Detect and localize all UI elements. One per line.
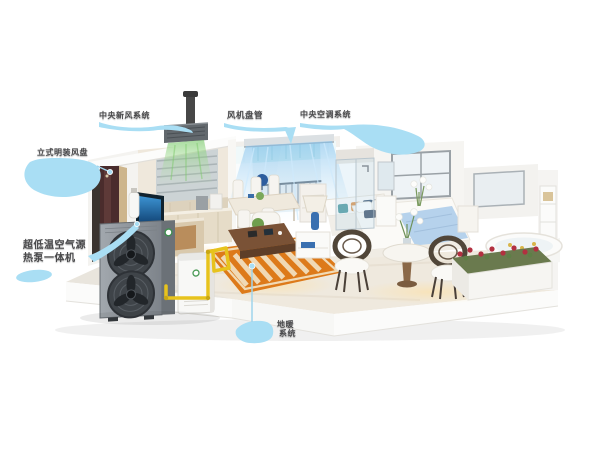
callout-label-floor-heating: 地暖 系统 [277, 321, 296, 338]
callout-dot-heat-pump [134, 221, 139, 226]
callout-dot-floor-heating [249, 263, 255, 269]
kettle [129, 188, 139, 218]
fresh-air-flow [158, 140, 212, 187]
heat-pump-label-line1: 超低温空气源 [23, 239, 86, 252]
callout-ribbon-fan-coil [224, 123, 290, 132]
callout-blob-heat-pump [15, 268, 52, 284]
callout-label-fan-coil: 风机盘管 [227, 112, 263, 121]
callout-label-central-ac: 中央空调系统 [300, 111, 351, 119]
callout-dot-floor-fan-coil [107, 169, 112, 174]
callout-label-heat-pump: 超低温空气源 热泵一体机 [23, 239, 86, 265]
floor-heating-label-line2: 系统 [279, 330, 296, 338]
heat-pump-home-diagram: 中央新风系统 风机盘管 中央空调系统 立式明装风盘 超低温空气源 热泵一体机 地… [0, 0, 600, 450]
callout-label-fresh-air: 中央新风系统 [99, 112, 150, 120]
scene-illustration [0, 0, 600, 450]
outdoor-heat-pump-unit [100, 220, 175, 322]
callout-label-floor-fan-coil: 立式明装风盘 [37, 149, 88, 157]
unit-shadow [80, 311, 220, 325]
callout-blob-floor-fan-coil [24, 158, 100, 197]
floor-heating-label-line1: 地暖 [277, 321, 296, 329]
vertical-fan-coil-cabinet [100, 166, 127, 232]
heat-pump-label-line2: 热泵一体机 [23, 252, 86, 265]
